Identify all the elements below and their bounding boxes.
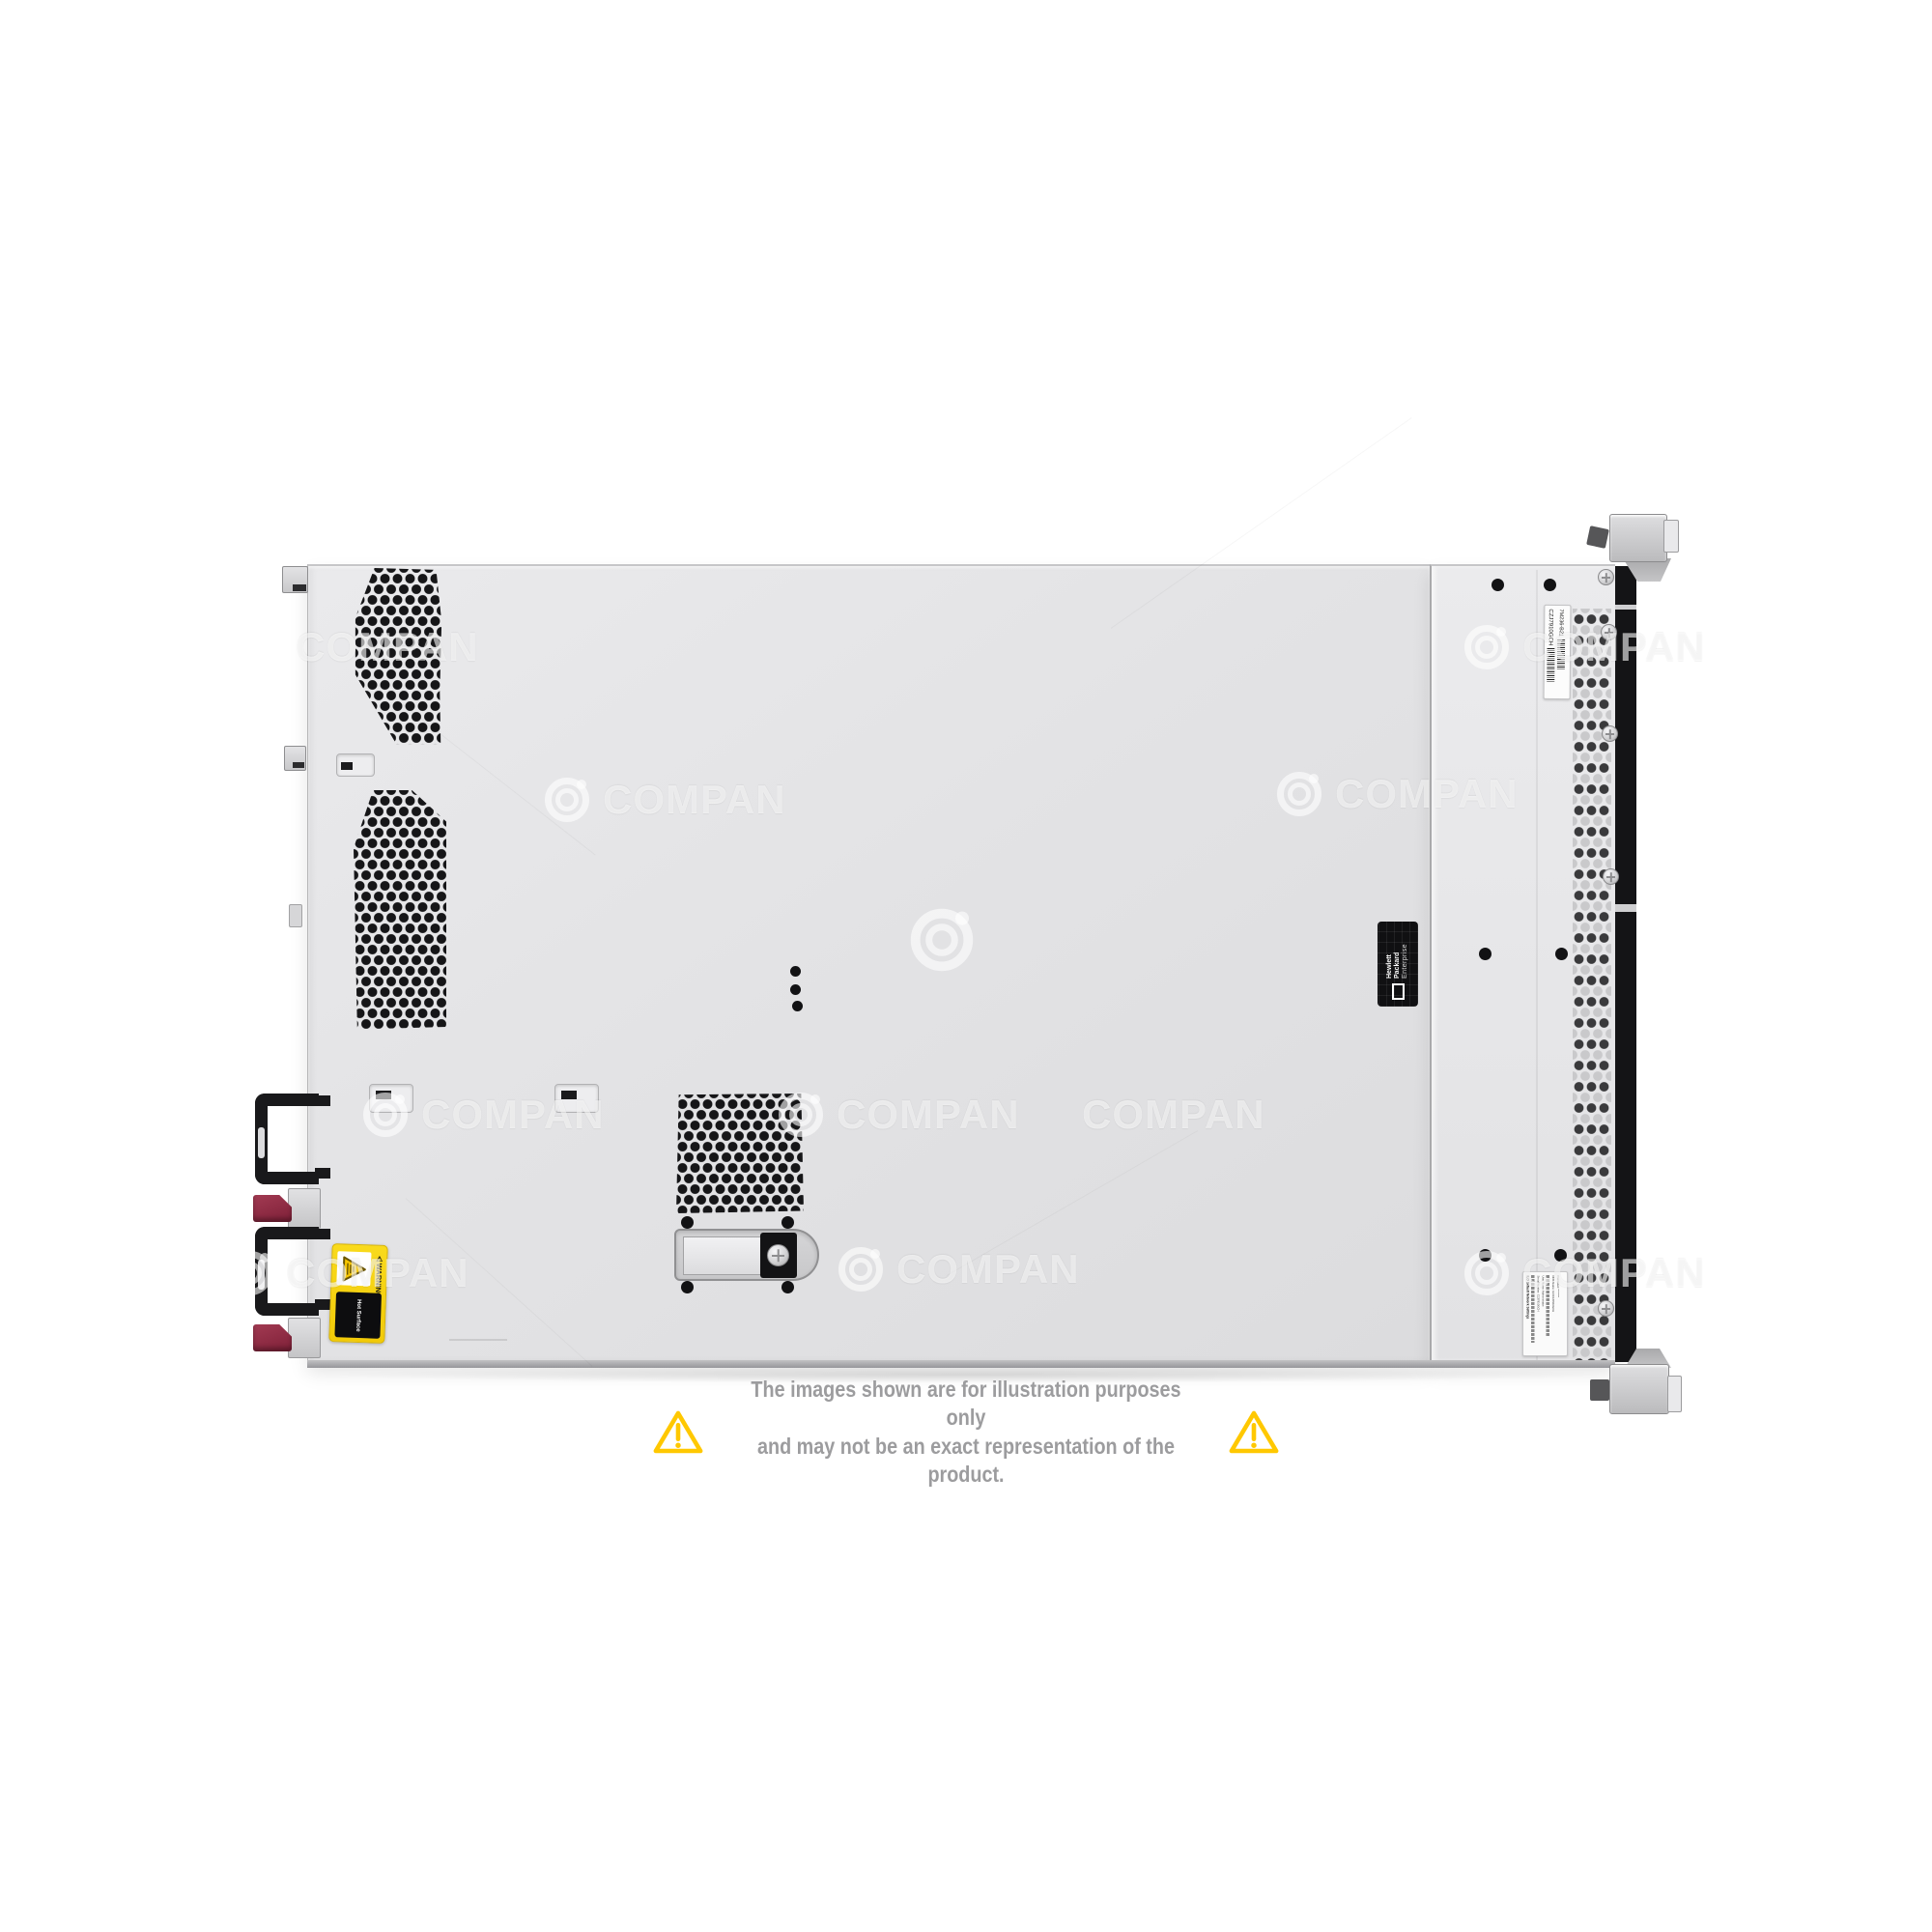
ilo-line: Password: ******** <box>1556 1276 1559 1354</box>
psu-handle-2 <box>255 1227 319 1316</box>
warning-glyph-icon: ⚠ <box>375 1255 384 1264</box>
hpe-brand-line2: Enterprise <box>1402 928 1409 979</box>
front-bezel-strip <box>1615 566 1636 1362</box>
screw-hole <box>1479 1249 1492 1262</box>
panel-screw <box>1601 624 1617 640</box>
ilo-line: Serial Number: CZJ7910GCH <box>1537 1276 1540 1354</box>
screw-hole <box>1492 579 1504 591</box>
rack-ear-tab-top <box>1663 520 1679 553</box>
product-photo-canvas: CZJ7910GCH 7M236-B21 iLO Default Network… <box>0 0 1932 1932</box>
vent-middle-left <box>354 790 446 1032</box>
screw-hole <box>681 1216 694 1229</box>
panel-screw <box>1602 725 1618 742</box>
rack-ear-latch-bottom <box>1590 1379 1609 1401</box>
serial-number-label: CZJ7910GCH 7M236-B21 <box>1544 605 1572 699</box>
vent-center-bottom <box>676 1094 804 1213</box>
clip-hook <box>293 762 304 768</box>
handle-slot <box>258 1127 265 1158</box>
vent-front-strip <box>1573 609 1611 1360</box>
rack-ear-latch-top <box>1586 526 1609 549</box>
latch-torx-screw <box>767 1244 789 1266</box>
warning-icon-box <box>336 1251 371 1286</box>
hot-surface-warning-label: ⚠WARNING: Hot Surface <box>328 1243 388 1344</box>
disclaimer-line2: and may not be an exact representation o… <box>750 1433 1181 1490</box>
hot-surface-triangle-icon <box>341 1255 367 1283</box>
cover-latch <box>369 1084 413 1113</box>
rack-ear-bottom <box>1609 1364 1669 1414</box>
edge-bump <box>289 904 302 927</box>
panel-scratch <box>449 1339 507 1341</box>
disclaimer-text: The images shown are for illustration pu… <box>750 1376 1181 1490</box>
edge-clip <box>282 566 308 593</box>
panel-screw <box>1598 569 1614 585</box>
vent-hole <box>790 966 801 977</box>
vent-hole <box>792 1001 803 1011</box>
hot-surface-text: Hot Surface <box>355 1299 361 1332</box>
psu-connector-1 <box>288 1188 321 1229</box>
vent-hole <box>790 984 801 995</box>
cover-latch <box>336 753 375 777</box>
screw-hole <box>1544 579 1556 591</box>
psu-release-tab-2 <box>253 1324 292 1351</box>
disclaimer: The images shown are for illustration pu… <box>653 1376 1279 1490</box>
ilo-line: DNS Name: ILOCZJ7910GCH <box>1551 1276 1554 1354</box>
warning-triangle-icon <box>653 1409 703 1455</box>
bezel-notch <box>1615 904 1636 912</box>
serial-column: 7M236-B21 <box>1557 610 1566 697</box>
warning-triangle-icon <box>1229 1409 1279 1455</box>
panel-screw <box>1603 868 1619 885</box>
hot-surface-box: Hot Surface <box>334 1292 382 1339</box>
disclaimer-line1: The images shown are for illustration pu… <box>750 1376 1181 1433</box>
screw-hole <box>1555 948 1568 960</box>
rack-ear-top <box>1609 514 1667 562</box>
latch-hook <box>561 1091 577 1099</box>
hpe-logo-icon <box>1392 983 1405 1000</box>
rack-ear-tab-bottom <box>1667 1376 1682 1412</box>
bezel-notch <box>1615 605 1636 610</box>
serial-column: CZJ7910GCH <box>1547 609 1555 696</box>
hpe-brand-label: Hewlett Packard Enterprise <box>1378 922 1418 1007</box>
psu-release-tab-1 <box>253 1195 292 1222</box>
edge-clip <box>284 746 306 771</box>
barcode <box>1547 1276 1550 1337</box>
clip-hook <box>293 584 306 591</box>
cover-latch <box>554 1084 599 1113</box>
chassis-bottom-edge <box>307 1360 1615 1368</box>
panel-seam-line <box>1536 570 1538 1360</box>
ilo-title: iLO Default Network Settings <box>1526 1276 1530 1354</box>
serial-number-text: CZJ7910GCH <box>1548 609 1554 645</box>
barcode <box>1531 1276 1535 1344</box>
ilo-line: User Name: Administrator <box>1542 1276 1545 1354</box>
hpe-brand-line1: Hewlett Packard <box>1386 928 1402 979</box>
screw-hole <box>781 1216 794 1229</box>
panel-screw <box>1598 1300 1614 1317</box>
psu-handle-1 <box>255 1094 319 1184</box>
watermark-logo-icon <box>238 625 282 669</box>
cover-latch-plate <box>683 1236 762 1275</box>
screw-hole <box>1479 948 1492 960</box>
latch-hook <box>341 762 353 770</box>
ilo-settings-label: iLO Default Network Settings Serial Numb… <box>1522 1271 1568 1356</box>
screw-hole <box>681 1281 694 1293</box>
psu-connector-2 <box>288 1318 321 1358</box>
barcode <box>1547 648 1554 683</box>
screw-hole <box>1554 1249 1567 1262</box>
screw-hole <box>781 1281 794 1293</box>
part-number-text: 7M236-B21 <box>1558 610 1564 637</box>
handle-slot <box>258 1260 265 1290</box>
barcode <box>1557 639 1565 669</box>
server-top-cover <box>307 564 1430 1364</box>
latch-hook <box>376 1091 391 1099</box>
